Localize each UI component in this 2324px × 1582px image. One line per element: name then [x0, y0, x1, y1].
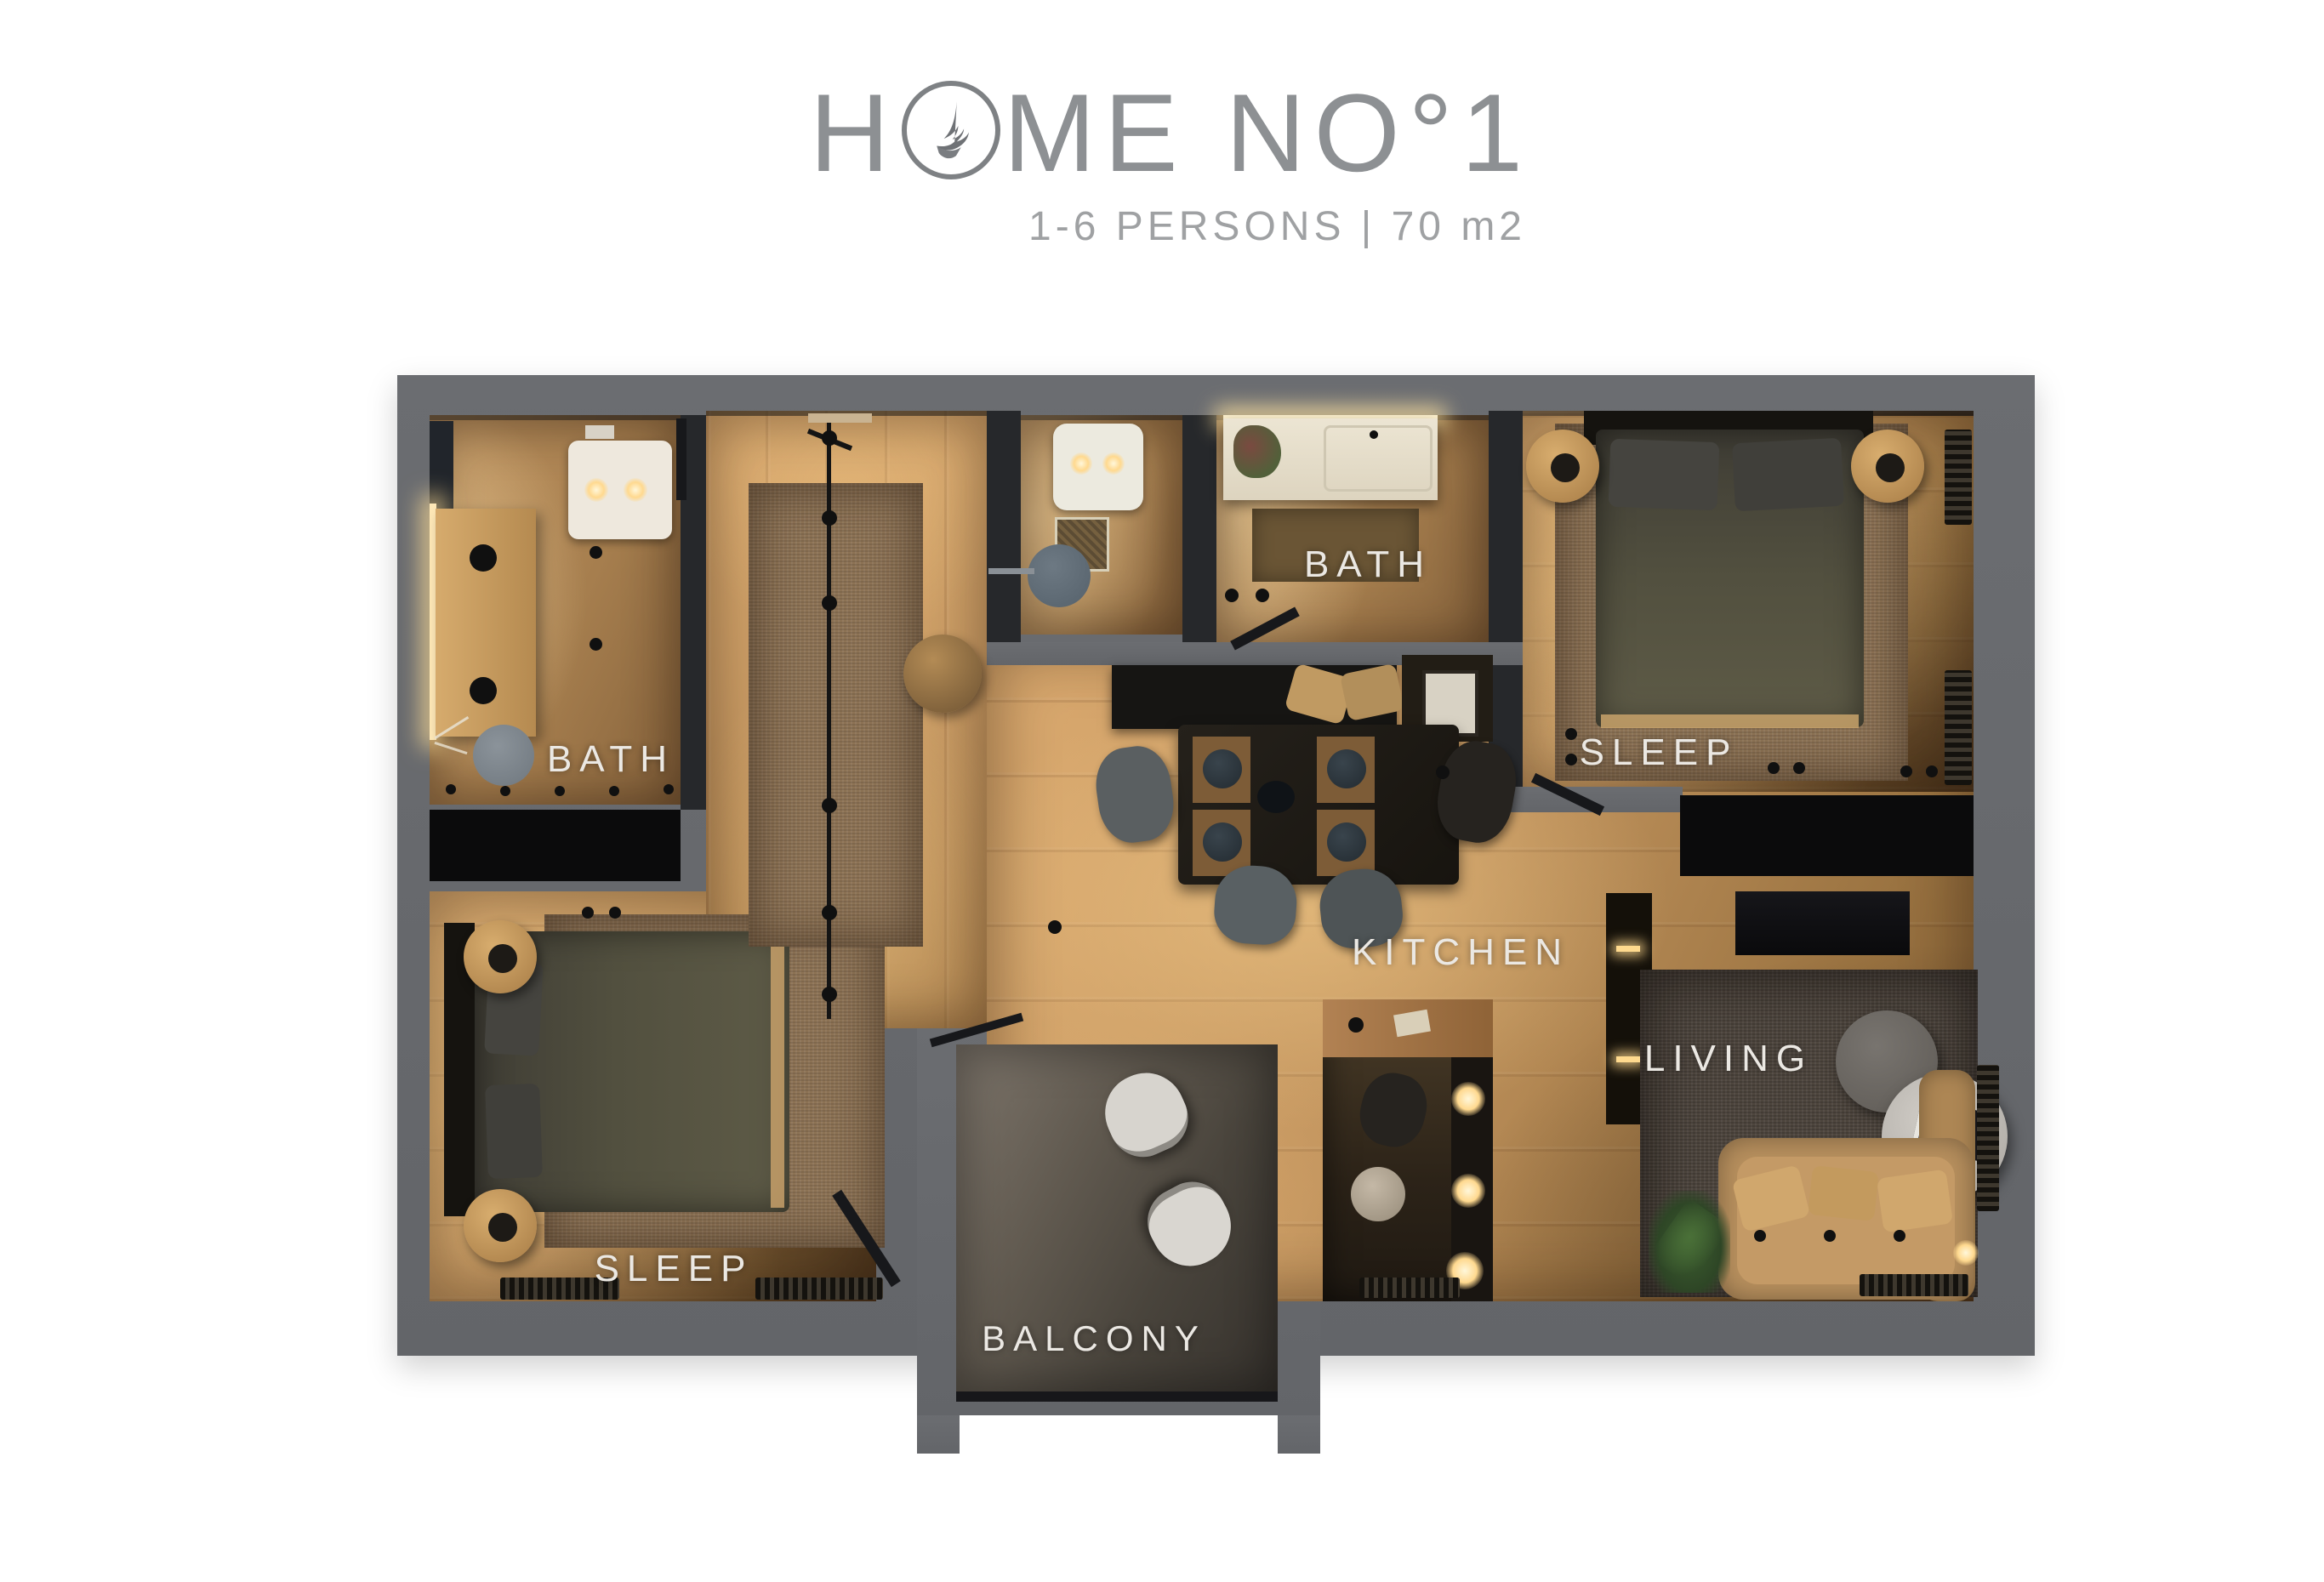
radiator	[1977, 1065, 1999, 1211]
radiator	[1945, 670, 1972, 785]
bed-foot-bench	[771, 936, 784, 1208]
bed-pillow	[485, 1084, 543, 1179]
room-label-balcony: BALCONY	[982, 1318, 1206, 1359]
floor-dot	[1900, 765, 1912, 777]
bedside-lamp	[488, 1213, 517, 1242]
page-title: HME NO°1	[766, 75, 1531, 191]
sink-bowl	[1324, 425, 1433, 492]
floor-dot	[1256, 589, 1269, 602]
floor-dot	[500, 786, 510, 796]
bedside-lamp	[488, 944, 517, 973]
sofa-pillow	[1877, 1169, 1953, 1233]
floor-dot	[1926, 765, 1938, 777]
bed-pillow	[1732, 438, 1844, 512]
floor-dot	[1048, 920, 1062, 934]
sink-drain	[470, 544, 497, 572]
washer-light	[584, 478, 608, 502]
floor-dot	[609, 907, 621, 919]
sofa-button	[1894, 1230, 1905, 1242]
title-prefix: H	[810, 71, 898, 195]
floor-dot	[1225, 589, 1239, 602]
tv	[1735, 891, 1910, 955]
title-suffix: ME NO°1	[1004, 71, 1531, 195]
floor-dot	[1793, 762, 1805, 774]
bath-mirror-cabinet	[430, 421, 453, 513]
radiator	[1359, 1278, 1460, 1298]
balcony-wall-leg	[1278, 1415, 1320, 1454]
toilet-light	[1070, 452, 1092, 475]
bird-icon	[915, 93, 987, 168]
room-label-living: LIVING	[1644, 1038, 1813, 1080]
faucet	[1370, 430, 1378, 439]
room-label-bath-left: BATH	[547, 738, 675, 781]
basin-faucet	[988, 568, 1034, 574]
track-spotlight	[822, 905, 837, 920]
floor-dot	[1436, 765, 1450, 779]
floor-dot	[664, 784, 674, 794]
floor-lamp	[1953, 1240, 1979, 1266]
washer-light	[624, 478, 647, 502]
toilet	[1053, 424, 1143, 510]
serving-bowl	[1257, 781, 1295, 813]
radiator	[755, 1278, 883, 1300]
oven-handle-light	[1616, 1056, 1640, 1062]
place-setting	[1317, 737, 1375, 803]
stool	[1351, 1167, 1405, 1221]
track-light	[827, 418, 831, 1019]
track-spotlight	[822, 510, 837, 526]
plate	[1327, 822, 1366, 862]
floor-dot	[1565, 728, 1577, 740]
floorplan-poster: HME NO°1 1-6 PERSONS | 70 m2	[0, 0, 2324, 1582]
plate	[1327, 749, 1366, 788]
floor-dot	[609, 786, 619, 796]
stool	[473, 725, 534, 786]
header: HME NO°1 1-6 PERSONS | 70 m2	[766, 75, 1531, 250]
floor-dot	[590, 638, 602, 651]
toilet-light	[1102, 452, 1125, 475]
plate	[1203, 822, 1242, 862]
wall-lamp	[1451, 1174, 1485, 1208]
place-setting	[1193, 737, 1250, 803]
wash-basin	[1028, 544, 1091, 607]
bedside-lamp	[1876, 453, 1905, 482]
radiator	[1860, 1274, 1968, 1296]
floor-dot	[446, 784, 456, 794]
track-spotlight	[822, 430, 837, 446]
wardrobe	[1680, 795, 1974, 876]
bed-foot-bench	[1601, 714, 1859, 728]
floor-dot	[1565, 754, 1577, 765]
floor-dot	[555, 786, 565, 796]
balcony-wall-leg	[917, 1415, 960, 1454]
sofa-button	[1824, 1230, 1836, 1242]
room-label-kitchen: KITCHEN	[1352, 931, 1569, 974]
room-label-bath-top: BATH	[1304, 543, 1432, 586]
flower-vase	[1233, 425, 1281, 478]
wall-bath-sleep	[1489, 411, 1523, 787]
room-label-sleep-left: SLEEP	[595, 1248, 754, 1290]
radiator	[1945, 430, 1972, 525]
wall-wc-bath	[1182, 415, 1216, 642]
oven-handle-light	[1616, 946, 1640, 952]
track-spotlight	[822, 987, 837, 1002]
floor-dot	[1768, 762, 1780, 774]
subtitle: 1-6 PERSONS | 70 m2	[766, 203, 1531, 250]
wall-hall-wc	[987, 411, 1021, 645]
floor-dot	[582, 907, 594, 919]
eagle-feather-logo-icon	[902, 81, 1000, 179]
sofa-button	[1754, 1230, 1766, 1242]
pouf	[903, 635, 982, 713]
track-spotlight	[822, 595, 837, 611]
door-leaf	[676, 418, 686, 500]
washer-panel	[585, 425, 614, 439]
desk-item	[1348, 1017, 1364, 1033]
wall-lamp	[1451, 1082, 1485, 1116]
room-label-sleep-right: SLEEP	[1580, 731, 1739, 774]
wardrobe	[430, 810, 681, 881]
plate	[1203, 749, 1242, 788]
sink-drain	[470, 677, 497, 704]
place-setting	[1317, 810, 1375, 876]
runner-rug	[749, 483, 923, 947]
sofa-pillow	[1808, 1165, 1879, 1221]
floor-dot	[590, 546, 602, 559]
bedside-lamp	[1551, 453, 1580, 482]
entry-door-threshold	[808, 413, 872, 423]
track-spotlight	[822, 798, 837, 813]
bed-pillow	[1609, 439, 1720, 510]
balcony-railing	[956, 1391, 1278, 1402]
